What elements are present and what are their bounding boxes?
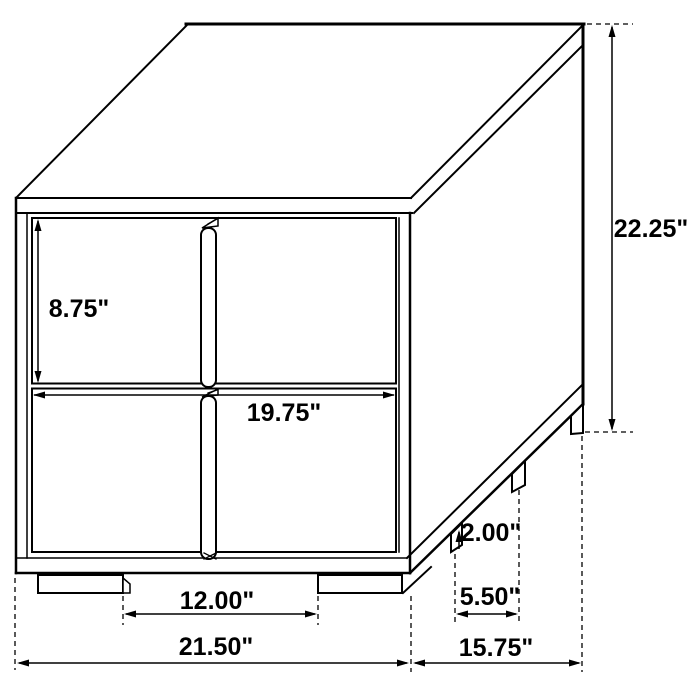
dim-front-feet-gap: 12.00": [123, 587, 318, 625]
top-panel: [16, 24, 584, 213]
dim-overall-height-label: 22.25": [614, 215, 688, 243]
dim-foot-height-label: 2.00": [461, 519, 522, 547]
dim-side-feet-gap: 5.50": [455, 490, 520, 622]
top-drawer-handle: [201, 218, 218, 397]
dim-overall-depth: 15.75": [411, 436, 582, 672]
dim-foot-height: 2.00": [456, 519, 522, 549]
dim-drawer-height: 8.75": [35, 219, 110, 383]
dim-overall-height: 22.25": [585, 24, 688, 432]
dim-overall-width-label: 21.50": [179, 633, 253, 661]
dimension-drawing-canvas: 8.75" 19.75" 22.25" 2.00" 5.50": [0, 0, 700, 700]
dim-drawer-height-label: 8.75": [49, 295, 110, 323]
nightstand-dimension-drawing: 8.75" 19.75" 22.25" 2.00" 5.50": [0, 0, 700, 700]
side-panel: [407, 24, 583, 573]
dim-overall-depth-label: 15.75": [459, 634, 533, 662]
dim-side-feet-gap-label: 5.50": [460, 583, 521, 611]
dim-front-feet-gap-label: 12.00": [180, 587, 254, 615]
bottom-drawer-handle: [201, 396, 216, 559]
dim-drawer-width-label: 19.75": [247, 399, 321, 427]
